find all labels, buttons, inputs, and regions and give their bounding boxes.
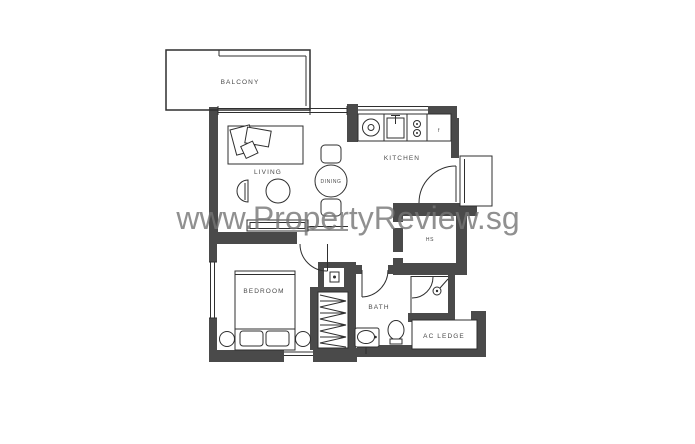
wall-shower-right	[448, 275, 455, 315]
armchair	[237, 180, 248, 202]
kitchen-label: KITCHEN	[384, 155, 420, 162]
living-label: LIVING	[254, 169, 282, 176]
bath-label: BATH	[368, 304, 389, 311]
wall-hs-bottom	[393, 263, 467, 275]
shower-arm-line	[440, 279, 448, 288]
toilet	[388, 321, 404, 340]
dining-label: DINING	[320, 179, 341, 185]
floor-plan-page: f	[0, 0, 695, 444]
dining-chair-top	[321, 145, 341, 163]
hob-burner-2-dot	[416, 132, 418, 134]
pillow-right	[266, 331, 289, 346]
basin-tap-dot	[374, 336, 377, 339]
wall-kitchen-right	[451, 118, 459, 158]
wall-bedroom-right	[310, 287, 318, 350]
nightstand-right	[296, 332, 311, 347]
water-heater-dot	[333, 276, 336, 279]
bedroom-label: BEDROOM	[243, 288, 284, 295]
hob-burner-1-dot	[416, 123, 418, 125]
shower-head-dot	[436, 290, 438, 292]
wall-bedroom-bottom	[209, 350, 284, 362]
shower-screen-arc	[412, 277, 433, 298]
wall-bedroom-left-upper	[209, 244, 217, 262]
fridge-label: f	[438, 128, 440, 134]
bath-door-arc	[362, 270, 388, 297]
hs-label: HS	[426, 237, 434, 243]
floor-plan-drawing: f	[0, 0, 695, 444]
kitchen-counter: f	[358, 114, 451, 141]
hs-door-jamb-bottom	[392, 252, 404, 258]
nightstand-left	[220, 332, 235, 347]
balcony-label: BALCONY	[221, 79, 260, 86]
pillow-left	[240, 331, 263, 346]
ac-ledge-label: AC LEDGE	[423, 333, 465, 340]
toilet-cistern	[390, 339, 402, 344]
wall-bath-top-left-stub	[356, 265, 362, 274]
watermark-text: www.PropertyReview.sg	[175, 200, 519, 236]
bedroom-furniture	[220, 271, 311, 350]
entrance-recess	[460, 156, 492, 206]
entrance-door-arc	[419, 166, 456, 203]
wall-kitchen-left	[347, 104, 358, 142]
wall-bottom-under-wardrobe	[313, 348, 357, 362]
